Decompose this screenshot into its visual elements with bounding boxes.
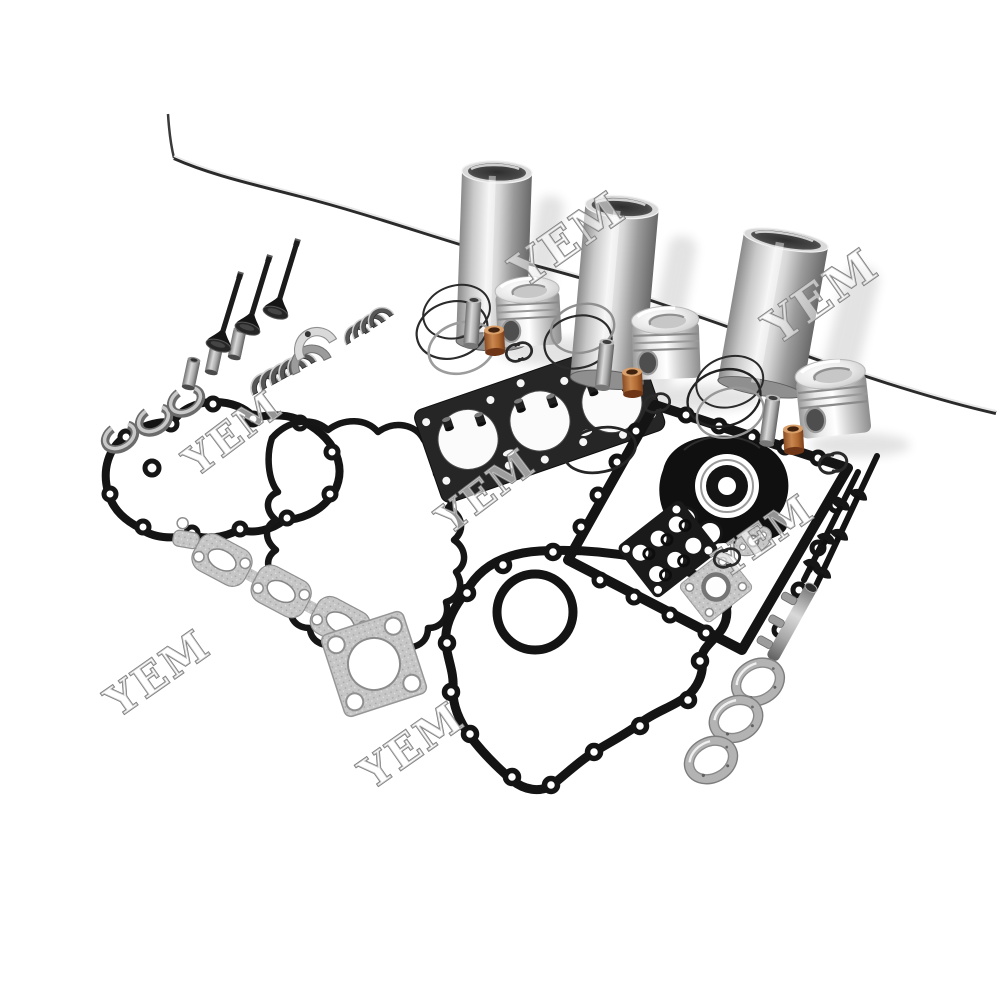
- engine-rebuild-kit-scene: YEMYEMYEMYEMYEMYEMYEM: [0, 0, 1000, 1000]
- product-photo: YEMYEMYEMYEMYEMYEMYEM: [0, 0, 1000, 1000]
- piston-3: [794, 356, 872, 439]
- piston-2: [631, 305, 701, 380]
